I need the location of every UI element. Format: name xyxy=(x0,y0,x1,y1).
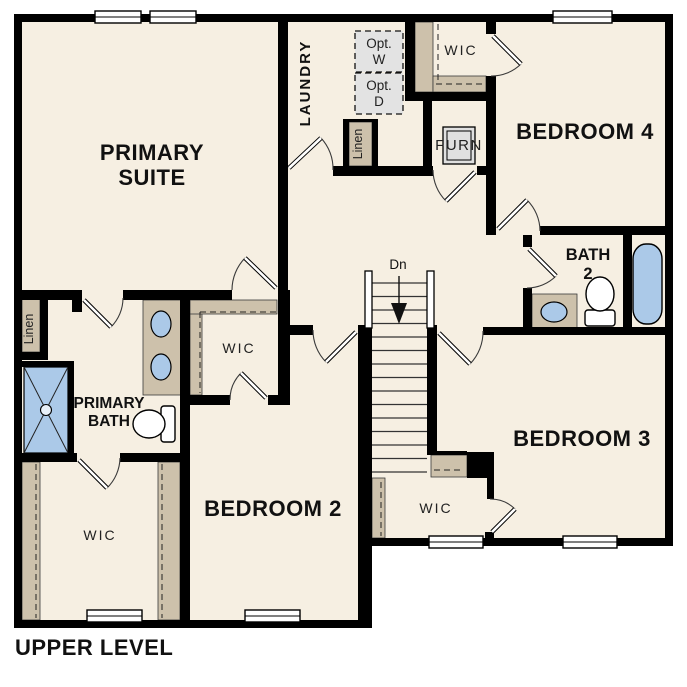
bathtub xyxy=(633,244,662,324)
bath2-sink xyxy=(541,302,567,322)
primary-bath-sink-1 xyxy=(151,311,171,337)
wic-bm-shelf-top xyxy=(431,455,467,477)
shower xyxy=(24,367,68,453)
floor-plan: PRIMARYSUITE BEDROOM 4 BEDROOM 3 BEDROOM… xyxy=(0,0,687,687)
wic-bl-shelf-left xyxy=(22,462,40,620)
linen-top-closet xyxy=(349,122,372,166)
wic-top-shelf-left xyxy=(415,22,433,92)
optional-washer-box xyxy=(355,31,403,72)
bath2-toilet xyxy=(585,277,615,326)
optional-dryer-box xyxy=(355,73,403,114)
linen-left-closet xyxy=(22,299,40,352)
floor-plan-drawing xyxy=(0,0,687,687)
furnace-box xyxy=(443,127,475,164)
primary-bath-sink-2 xyxy=(151,354,171,380)
shower-drain-icon xyxy=(41,405,52,416)
wic-bm-shelf-left xyxy=(372,478,385,538)
wic-bl-shelf-right xyxy=(158,462,180,620)
